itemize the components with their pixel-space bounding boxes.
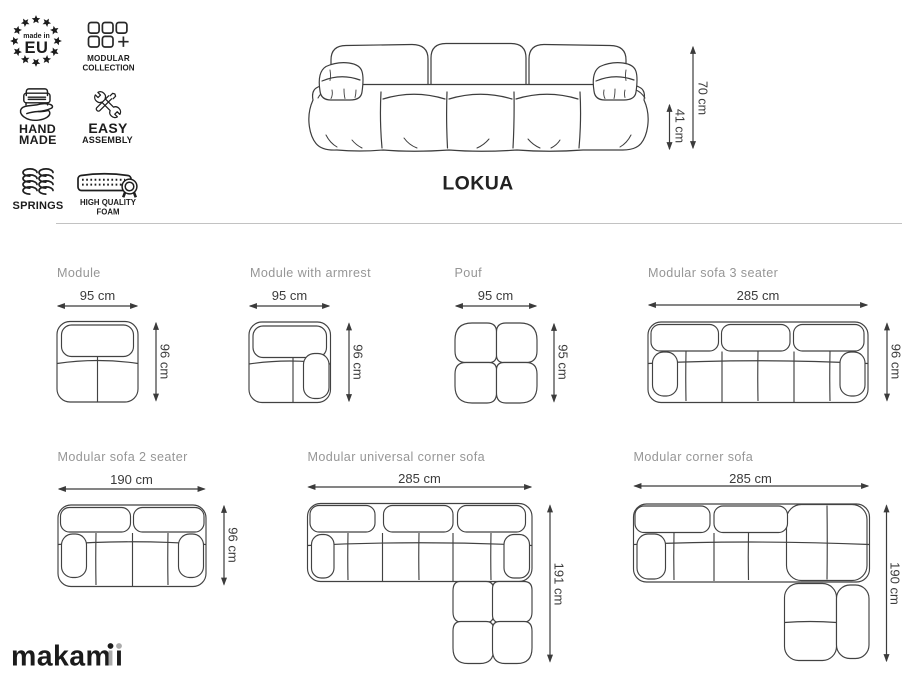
svg-text:190 cm: 190 cm	[888, 562, 903, 605]
svg-text:Pouf: Pouf	[455, 266, 483, 280]
svg-text:41 cm: 41 cm	[673, 109, 687, 143]
svg-text:COLLECTION: COLLECTION	[83, 63, 135, 72]
svg-text:95 cm: 95 cm	[80, 288, 115, 303]
svg-text:SPRINGS: SPRINGS	[13, 200, 64, 212]
svg-text:HIGH QUALITY: HIGH QUALITY	[80, 198, 137, 207]
svg-text:190 cm: 190 cm	[110, 472, 153, 487]
svg-text:96 cm: 96 cm	[226, 527, 241, 562]
svg-text:Modular sofa 2 seater: Modular sofa 2 seater	[58, 450, 188, 464]
svg-text:285 cm: 285 cm	[729, 471, 772, 486]
svg-text:95 cm: 95 cm	[272, 288, 307, 303]
svg-text:Modular universal corner sofa: Modular universal corner sofa	[308, 450, 486, 464]
svg-text:95 cm: 95 cm	[478, 288, 513, 303]
svg-text:70 cm: 70 cm	[696, 81, 710, 115]
svg-text:Module: Module	[57, 266, 101, 280]
svg-text:LOKUA: LOKUA	[442, 173, 513, 195]
svg-text:285 cm: 285 cm	[398, 471, 441, 486]
svg-text:MODULAR: MODULAR	[87, 54, 130, 63]
svg-text:MADE: MADE	[19, 133, 57, 147]
svg-text:ASSEMBLY: ASSEMBLY	[82, 135, 133, 145]
svg-text:makam: makam	[11, 641, 111, 673]
svg-text:FOAM: FOAM	[97, 208, 120, 217]
svg-text:96 cm: 96 cm	[158, 344, 173, 379]
svg-text:285 cm: 285 cm	[737, 288, 780, 303]
svg-text:Modular sofa 3 seater: Modular sofa 3 seater	[648, 266, 778, 280]
svg-text:96 cm: 96 cm	[351, 344, 366, 379]
svg-text:96 cm: 96 cm	[889, 344, 904, 379]
svg-text:Modular corner sofa: Modular corner sofa	[634, 450, 754, 464]
svg-text:EASY: EASY	[88, 120, 128, 136]
svg-text:191 cm: 191 cm	[552, 563, 567, 606]
svg-text:95 cm: 95 cm	[556, 344, 571, 379]
svg-text:EU: EU	[25, 39, 49, 57]
svg-text:Module with armrest: Module with armrest	[250, 266, 371, 280]
